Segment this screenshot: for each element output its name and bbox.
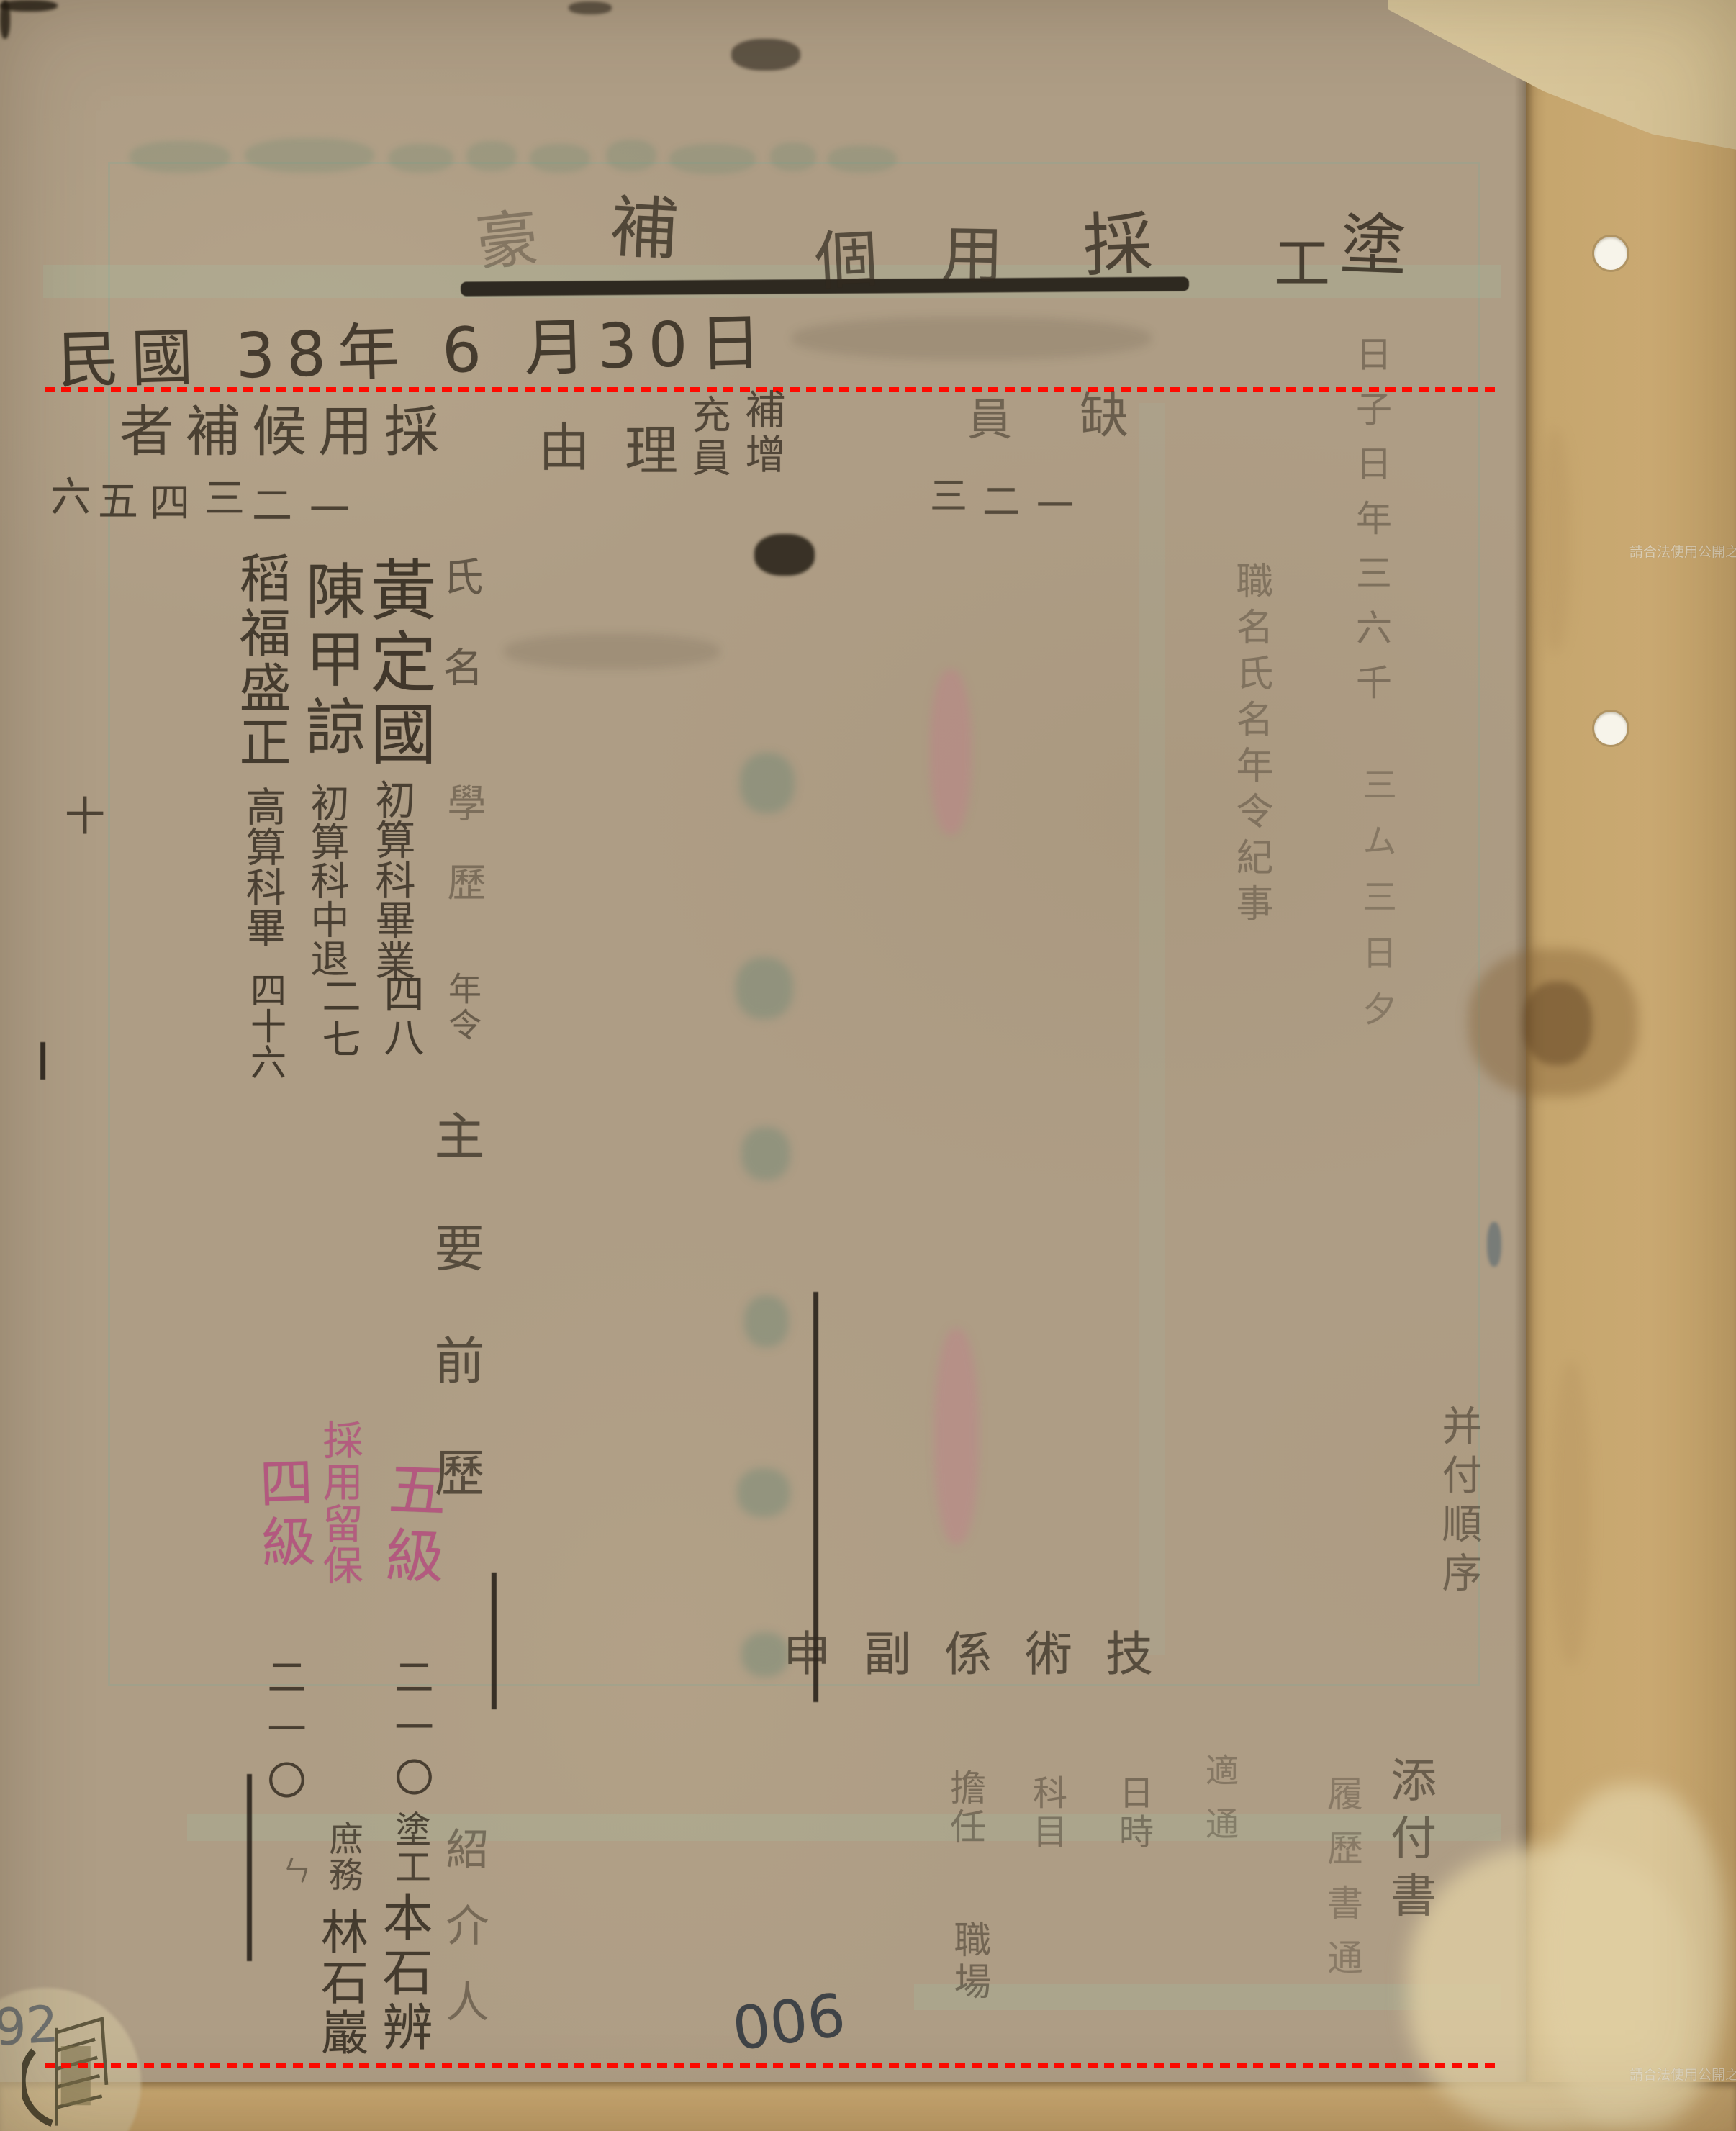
ink-speckle (731, 39, 800, 71)
teal-bleedthrough-glyph (741, 1632, 789, 1677)
grid-line-h (45, 2063, 1501, 2068)
right-col-3: 三 (930, 478, 967, 515)
grade-col3-red: 四級 (254, 1454, 312, 1574)
grid-line-v (144, 468, 146, 2066)
header-ri: 理 (625, 425, 678, 478)
grid-line-heavy (247, 1774, 252, 1961)
title-char-4: 用 (941, 224, 1003, 286)
header-yu: 由 (538, 422, 590, 474)
page-number: 006 (729, 1986, 849, 2060)
introducer-col1-role: 塗工 (392, 1811, 428, 1886)
teal-bleedthrough-glyph (737, 1468, 790, 1517)
age-col1: 四八 (380, 973, 420, 1059)
glue-streak (1539, 429, 1570, 652)
education-col1: 初算科畢業 (371, 779, 412, 980)
rowheader-age: 年令 (446, 972, 479, 1044)
left-col-5: 五 (98, 482, 138, 522)
ink-smudge (0, 0, 10, 39)
grid-line-h (45, 468, 1161, 470)
education-col3: 高算科畢 (242, 786, 282, 947)
faded-green-stamp-fragment (389, 144, 453, 173)
corner-number: 92 (0, 1999, 60, 2053)
grid-line-v (1036, 403, 1039, 684)
right-col-1: 一 (1036, 488, 1074, 525)
title-char-3: 個 (813, 227, 880, 294)
faint-column-c: 職名氏名年令紀事 (1232, 561, 1270, 930)
grid-line-v (813, 387, 816, 2089)
grid-line-h (813, 684, 1501, 687)
rowheader-education: 學歷 (443, 783, 482, 941)
watermark-top: 請合法使用公開之影像 (1629, 546, 1736, 559)
faded-green-stamp-fragment (606, 140, 656, 171)
label-nichiji: 日時 (1116, 1775, 1150, 1852)
introducer-col2-role: 庶務 (325, 1821, 360, 1893)
faded-green-stamp-fragment (828, 145, 897, 173)
left-col-3: 三 (204, 479, 245, 520)
date-line: 民國 38年 6 月30日 (57, 312, 774, 392)
title-char-7: 塗 (1339, 212, 1407, 280)
right-note-tenpusho: 添付書 (1386, 1756, 1432, 1929)
faint-handwriting-smudge (792, 317, 1152, 360)
brown-stain-core (1523, 982, 1592, 1065)
grid-line-heavy (40, 1042, 45, 1080)
right-note-junjo: 并付順序 (1438, 1405, 1478, 1601)
grade-col1-red: 五級 (380, 1459, 442, 1593)
number-col1: 二一〇 (391, 1657, 430, 1808)
rowheader-name: 氏名 (439, 556, 479, 737)
grid-line-v (94, 468, 96, 1814)
faded-green-stamp-fragment (530, 144, 590, 173)
grid-line-h (813, 1295, 1161, 1298)
grade-col2-red: 採用留保 (319, 1419, 359, 1586)
teal-bleedthrough-glyph (740, 753, 795, 813)
glue-streak (1552, 1362, 1591, 1664)
teal-bleedthrough-glyph (741, 1127, 790, 1180)
bottom-mid-header: 申副係術技 (783, 1631, 1186, 1678)
education-col2: 初算科中退 (307, 783, 345, 977)
teal-bleedthrough-glyph (736, 957, 793, 1019)
title-char-6: 工 (1274, 236, 1330, 292)
title-char-5: 採 (1082, 209, 1153, 280)
grid-line-h (45, 538, 1501, 540)
grid-line-v (1224, 1691, 1226, 2066)
faded-pink-stamp (930, 669, 972, 835)
faint-column-b: 三ム三日夕 (1359, 766, 1393, 1047)
grid-line-v (1317, 387, 1319, 2089)
age-col2: 二七 (318, 976, 357, 1062)
label-tekitsuu: 適通 (1203, 1753, 1237, 1860)
header-ketsu: 缺 (1080, 392, 1129, 441)
faded-green-stamp-fragment (669, 144, 756, 174)
age-col3: 四十六 (248, 972, 284, 1080)
teal-bleedthrough-glyph (744, 1295, 789, 1347)
title-char-1: 豪 (474, 207, 542, 276)
faded-green-stamp-fragment (130, 141, 230, 173)
label-kamoku: 科目 (1029, 1775, 1064, 1852)
grid-line-h (45, 1814, 1501, 1816)
hook-mark: ㄣ (282, 1857, 311, 1886)
grid-line-h (921, 459, 1161, 461)
header-juuin: 充員 (688, 394, 727, 481)
left-col-4: 四 (150, 484, 190, 524)
green-band-middle (187, 1814, 1501, 1841)
faded-green-stamp-fragment (770, 142, 816, 171)
blue-mark (1487, 1222, 1501, 1267)
ink-speckle (569, 1, 612, 14)
header-in: 員 (967, 397, 1012, 442)
title-char-2: 補 (609, 194, 680, 266)
plus-mark: 十 (65, 797, 105, 838)
introducer-col1-name: 本石辨 (379, 1891, 429, 2055)
grid-line-v (492, 387, 494, 2089)
grid-line-h (45, 774, 492, 777)
name-col3: 稻福盛正 (235, 551, 286, 770)
rowheader-introducer: 紹介人 (442, 1827, 485, 2055)
grid-line-v (45, 387, 48, 2068)
grid-line-v (193, 468, 195, 2066)
grid-line-v (777, 403, 779, 1698)
grid-line-h (1161, 972, 1501, 974)
name-col2: 陳甲諒 (301, 560, 361, 763)
header-hozou: 補增 (741, 389, 782, 478)
label-shokuba: 職場 (950, 1920, 987, 2004)
faded-green-stamp-fragment (245, 138, 374, 173)
left-col-1: 一 (309, 491, 350, 531)
left-col-6: 六 (50, 478, 91, 518)
faded-green-stamp-fragment (466, 141, 517, 171)
grid-line-heavy (492, 1573, 497, 1709)
hole-punch-bottom (1594, 712, 1627, 745)
header-saiyou-kouhosha: 者補候用採 (119, 404, 451, 459)
right-col-2: 二 (982, 484, 1020, 521)
name-col1: 黃定國 (364, 556, 430, 772)
grid-line-h (45, 967, 492, 969)
number-col3: 二一〇 (263, 1657, 302, 1812)
hole-punch-top (1594, 237, 1627, 270)
grid-line-v (1161, 387, 1164, 2089)
grid-line-h (921, 1896, 1224, 1899)
faint-column-a: 日子日年三六千 (1353, 335, 1389, 718)
introducer-col2-name: 林石巖 (317, 1907, 364, 2058)
watermark-bottom: 請合法使用公開之影像 (1629, 2068, 1736, 2082)
scanned-archival-form: 豪補個用採工塗民國 38年 6 月30日者補候用採六五四三二一由理充員補增員缺三… (0, 0, 1736, 2131)
label-tannin: 擔任 (947, 1769, 983, 1847)
faded-pink-stamp (934, 1329, 979, 1544)
left-col-2: 二 (252, 487, 292, 527)
right-note-rirekisho: 履歷書通 (1324, 1775, 1360, 1994)
grid-line-v (1501, 387, 1504, 2089)
faint-handwriting-smudge (504, 633, 720, 669)
